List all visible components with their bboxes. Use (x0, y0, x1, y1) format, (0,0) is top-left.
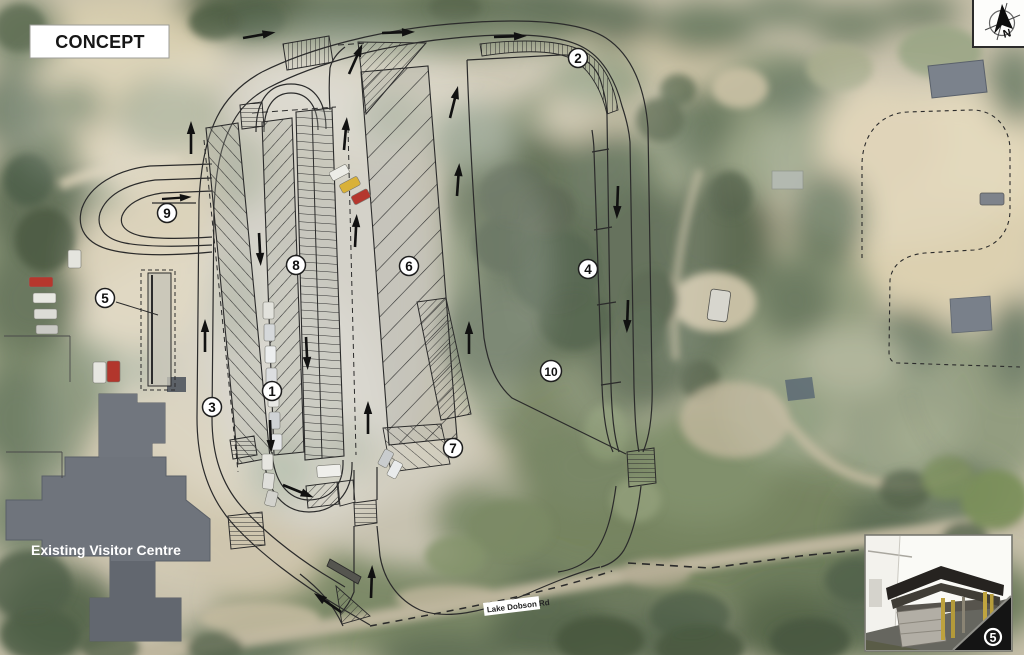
svg-text:8: 8 (292, 258, 300, 273)
svg-text:5: 5 (101, 291, 109, 306)
svg-text:3: 3 (208, 400, 216, 415)
svg-text:4: 4 (584, 262, 592, 277)
svg-text:2: 2 (574, 51, 582, 66)
svg-text:10: 10 (544, 365, 558, 379)
svg-text:Existing Visitor Centre: Existing Visitor Centre (31, 542, 181, 558)
svg-text:CONCEPT: CONCEPT (55, 32, 144, 52)
svg-text:5: 5 (990, 631, 997, 645)
svg-text:1: 1 (268, 384, 276, 399)
svg-text:6: 6 (405, 259, 413, 274)
svg-text:7: 7 (449, 441, 457, 456)
svg-text:9: 9 (163, 206, 171, 221)
